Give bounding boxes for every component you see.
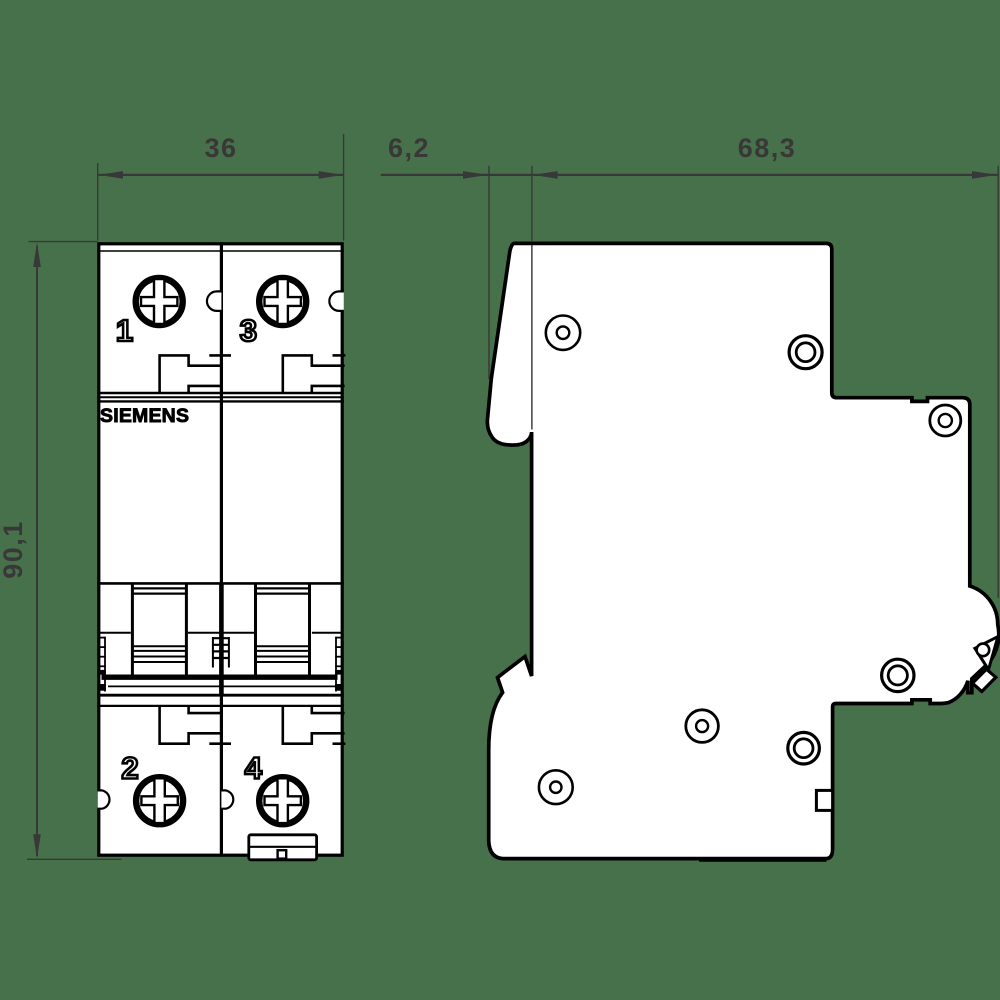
svg-text:36: 36 — [204, 133, 237, 163]
svg-text:4: 4 — [245, 751, 263, 786]
svg-text:SIEMENS: SIEMENS — [100, 405, 189, 427]
svg-text:2: 2 — [121, 751, 138, 786]
svg-text:6,2: 6,2 — [388, 133, 430, 163]
svg-text:90,1: 90,1 — [0, 520, 28, 579]
svg-text:1: 1 — [116, 313, 133, 348]
svg-text:68,3: 68,3 — [738, 133, 797, 163]
svg-text:3: 3 — [240, 313, 257, 348]
